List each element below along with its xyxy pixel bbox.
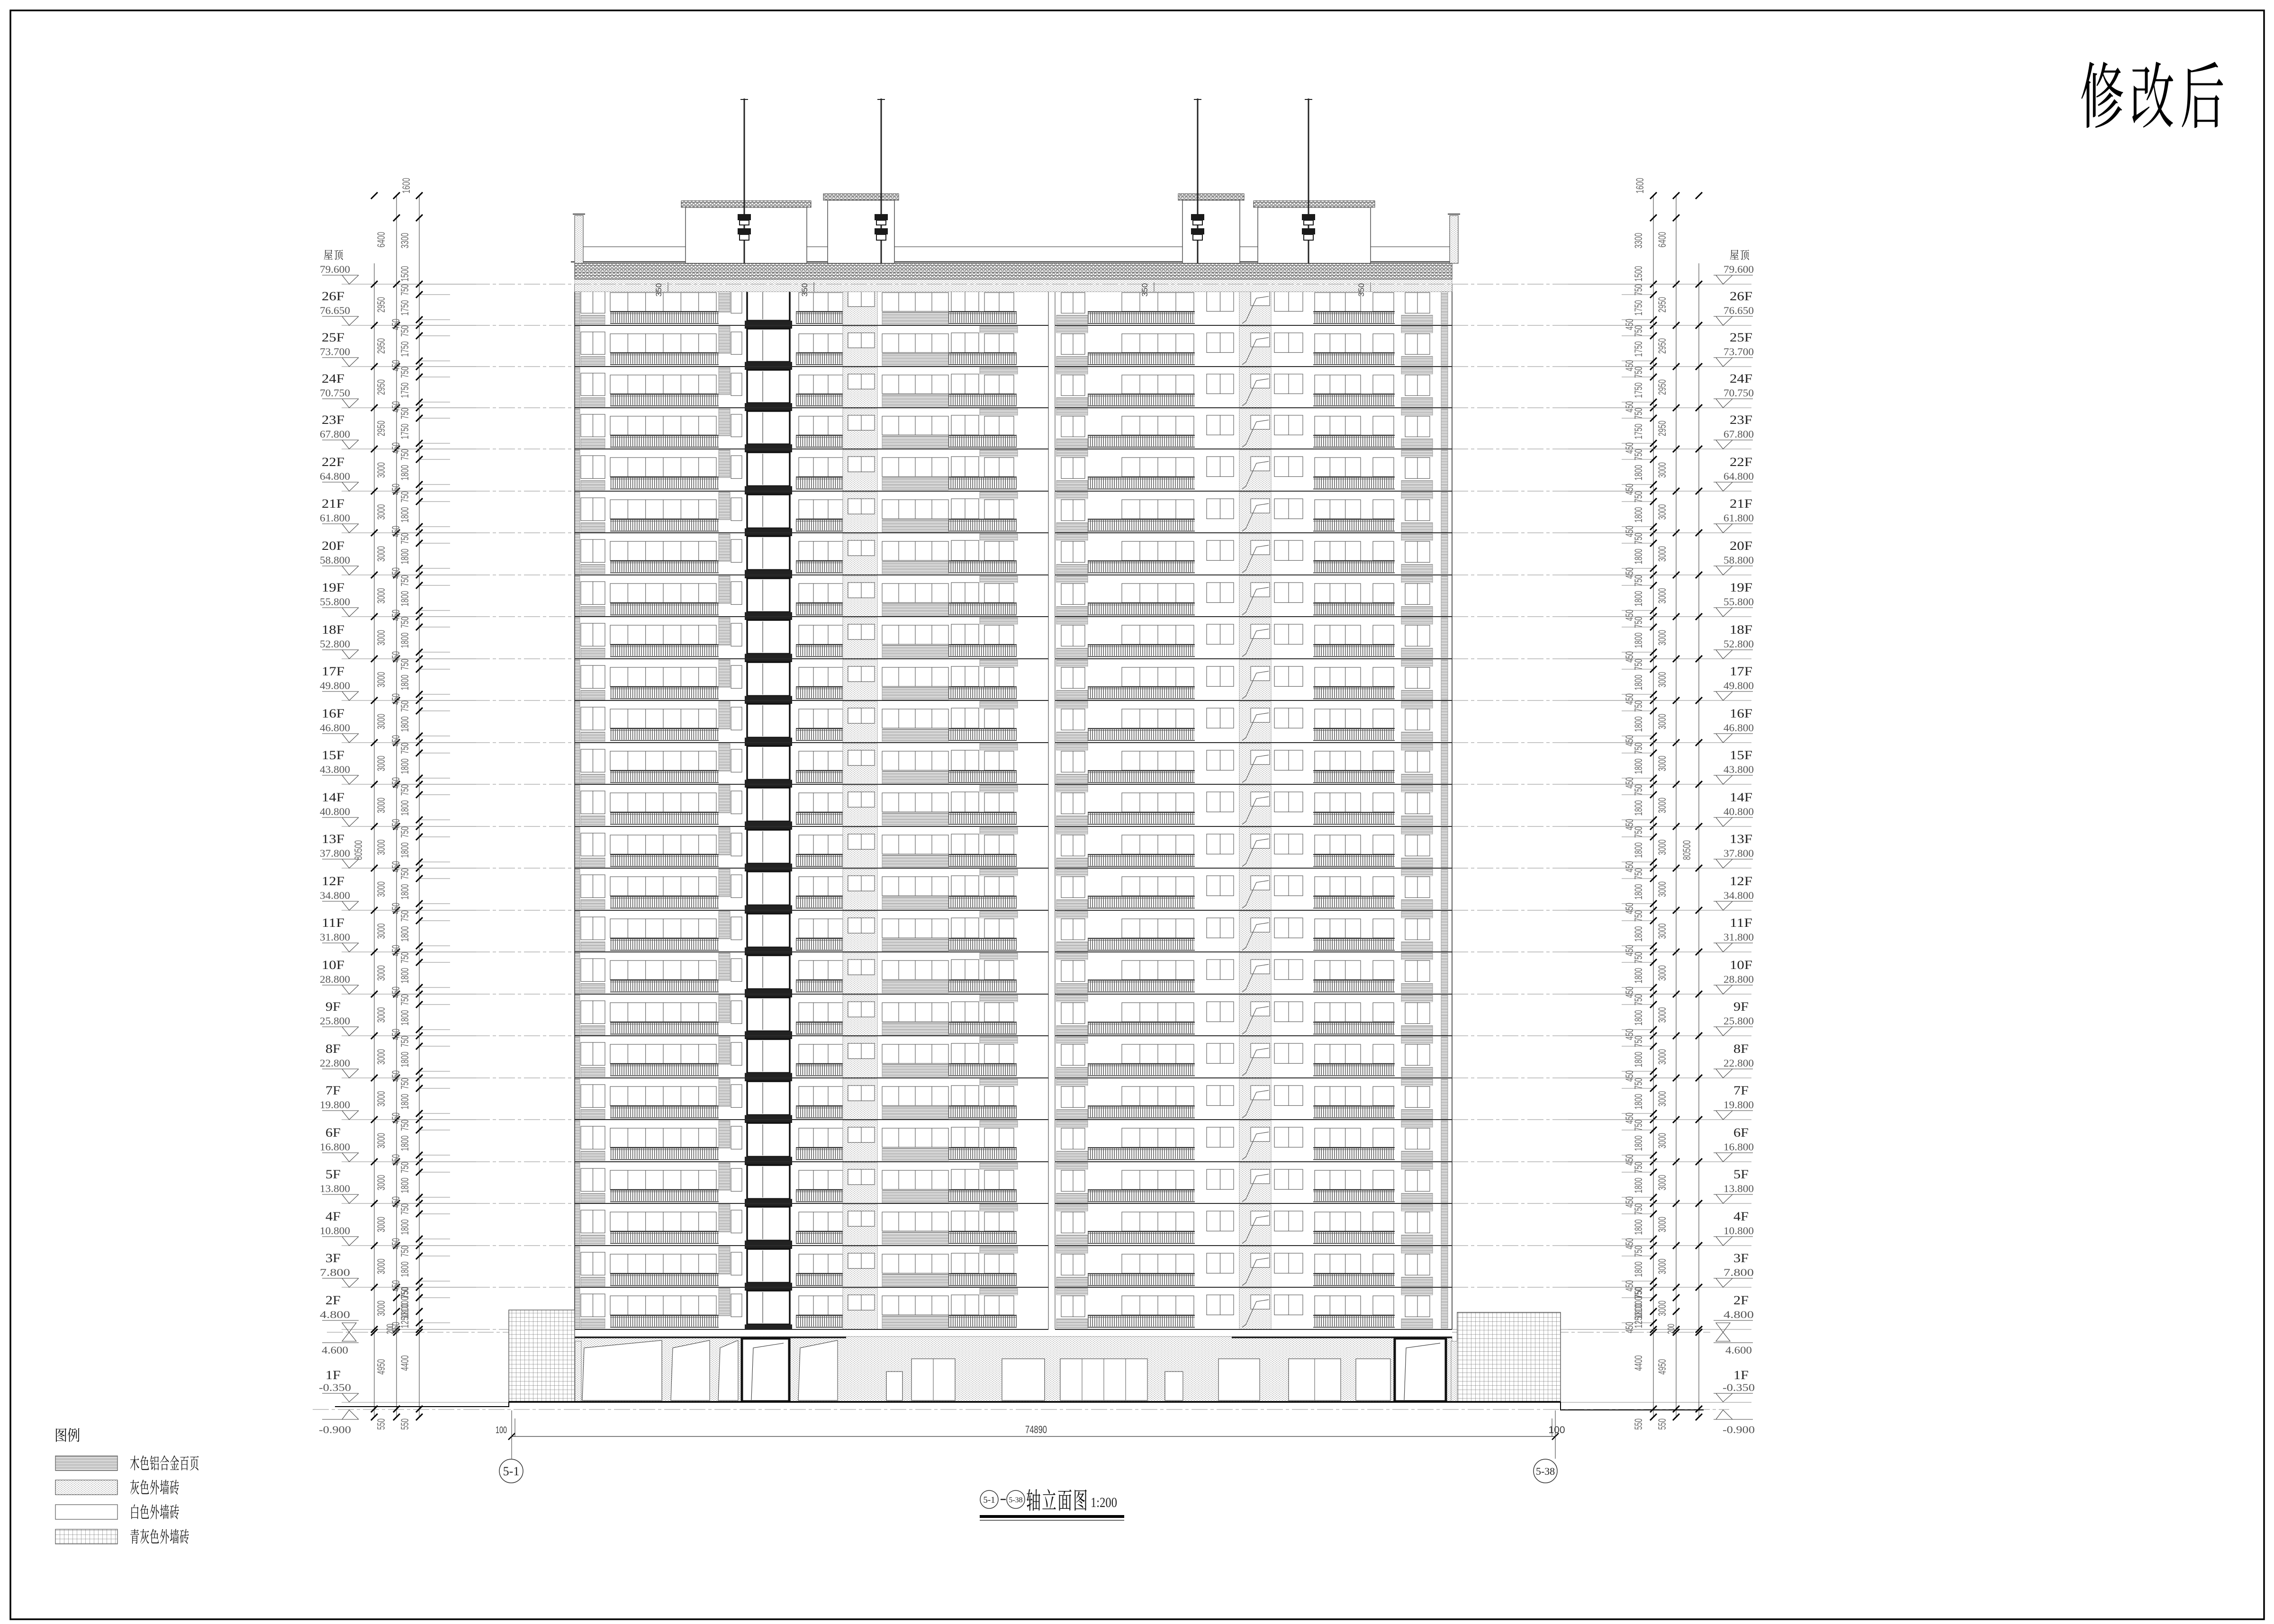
svg-text:750: 750 bbox=[399, 1078, 411, 1089]
svg-text:19F: 19F bbox=[1730, 581, 1752, 594]
svg-text:750: 750 bbox=[1633, 575, 1644, 586]
svg-text:750: 750 bbox=[1633, 533, 1644, 544]
svg-text:3000: 3000 bbox=[375, 630, 387, 646]
svg-text:750: 750 bbox=[399, 700, 411, 712]
svg-text:2950: 2950 bbox=[375, 338, 387, 354]
svg-text:7.800: 7.800 bbox=[1724, 1266, 1754, 1278]
svg-text:750: 750 bbox=[1633, 1287, 1644, 1298]
svg-text:1800: 1800 bbox=[1633, 1010, 1644, 1026]
svg-text:3000: 3000 bbox=[1656, 588, 1668, 604]
svg-text:13.800: 13.800 bbox=[320, 1183, 350, 1194]
svg-text:3000: 3000 bbox=[375, 1217, 387, 1232]
svg-text:1800: 1800 bbox=[1633, 1262, 1644, 1277]
svg-text:17F: 17F bbox=[1730, 664, 1752, 678]
svg-text:200: 200 bbox=[385, 1324, 396, 1334]
svg-text:19.800: 19.800 bbox=[320, 1099, 350, 1111]
svg-text:19.800: 19.800 bbox=[1724, 1099, 1754, 1111]
svg-text:24F: 24F bbox=[1730, 372, 1752, 386]
svg-text:3000: 3000 bbox=[375, 672, 387, 688]
svg-text:100: 100 bbox=[496, 1425, 507, 1436]
svg-text:17F: 17F bbox=[322, 664, 344, 678]
svg-text:3300: 3300 bbox=[399, 233, 411, 249]
svg-text:10.800: 10.800 bbox=[1724, 1225, 1754, 1237]
svg-text:13F: 13F bbox=[322, 832, 344, 846]
svg-text:3000: 3000 bbox=[375, 1049, 387, 1065]
svg-text:4400: 4400 bbox=[1633, 1355, 1644, 1371]
svg-text:6F: 6F bbox=[325, 1126, 341, 1139]
svg-text:1500: 1500 bbox=[399, 266, 411, 282]
svg-text:43.800: 43.800 bbox=[1724, 763, 1754, 775]
svg-text:26F: 26F bbox=[322, 289, 344, 303]
svg-text:3000: 3000 bbox=[375, 714, 387, 729]
svg-text:3000: 3000 bbox=[375, 1301, 387, 1316]
svg-text:2950: 2950 bbox=[375, 379, 387, 395]
svg-text:750: 750 bbox=[399, 491, 411, 502]
svg-text:3000: 3000 bbox=[375, 1091, 387, 1107]
svg-text:1800: 1800 bbox=[399, 1094, 411, 1110]
svg-text:3000: 3000 bbox=[1656, 546, 1668, 562]
svg-text:750: 750 bbox=[399, 1036, 411, 1047]
svg-text:2950: 2950 bbox=[375, 421, 387, 436]
svg-text:49.800: 49.800 bbox=[320, 680, 350, 691]
svg-text:64.800: 64.800 bbox=[320, 470, 350, 482]
svg-text:11F: 11F bbox=[322, 916, 344, 930]
svg-text:1800: 1800 bbox=[1633, 465, 1644, 481]
svg-text:2950: 2950 bbox=[1656, 297, 1668, 313]
svg-text:76.650: 76.650 bbox=[320, 305, 350, 316]
svg-text:2950: 2950 bbox=[375, 297, 387, 313]
svg-text:-0.900: -0.900 bbox=[1723, 1424, 1755, 1436]
svg-text:1800: 1800 bbox=[399, 591, 411, 607]
svg-text:3000: 3000 bbox=[1656, 965, 1668, 981]
svg-text:1800: 1800 bbox=[399, 843, 411, 858]
svg-text:58.800: 58.800 bbox=[1724, 554, 1754, 566]
svg-text:3000: 3000 bbox=[375, 1259, 387, 1274]
svg-text:1800: 1800 bbox=[1633, 717, 1644, 732]
svg-text:3300: 3300 bbox=[1633, 233, 1644, 249]
svg-text:46.800: 46.800 bbox=[1724, 722, 1754, 734]
svg-text:70.750: 70.750 bbox=[1724, 387, 1754, 399]
svg-text:15F: 15F bbox=[1730, 748, 1752, 762]
svg-text:34.800: 34.800 bbox=[320, 889, 350, 901]
svg-text:3000: 3000 bbox=[375, 546, 387, 562]
svg-text:6400: 6400 bbox=[375, 232, 387, 248]
svg-text:31.800: 31.800 bbox=[1724, 931, 1754, 943]
svg-text:750: 750 bbox=[399, 1120, 411, 1131]
svg-text:16F: 16F bbox=[322, 707, 344, 720]
svg-text:750: 750 bbox=[1633, 826, 1644, 838]
svg-text:750: 750 bbox=[1633, 1203, 1644, 1215]
svg-text:1750: 1750 bbox=[1633, 341, 1644, 357]
svg-text:350: 350 bbox=[654, 283, 663, 296]
svg-text:67.800: 67.800 bbox=[320, 428, 350, 440]
svg-text:20F: 20F bbox=[322, 539, 344, 553]
svg-text:25.800: 25.800 bbox=[1724, 1015, 1754, 1027]
svg-text:1800: 1800 bbox=[1633, 968, 1644, 984]
svg-text:73.700: 73.700 bbox=[1724, 346, 1754, 358]
svg-text:750: 750 bbox=[399, 910, 411, 922]
svg-text:26F: 26F bbox=[1730, 289, 1752, 303]
svg-text:4.600: 4.600 bbox=[1725, 1344, 1752, 1356]
svg-text:1800: 1800 bbox=[1633, 926, 1644, 942]
svg-text:11F: 11F bbox=[1730, 916, 1752, 930]
svg-text:14F: 14F bbox=[1730, 790, 1752, 804]
svg-text:3000: 3000 bbox=[1656, 1091, 1668, 1107]
svg-text:3000: 3000 bbox=[375, 462, 387, 478]
svg-text:7.800: 7.800 bbox=[320, 1266, 350, 1278]
svg-text:61.800: 61.800 bbox=[320, 512, 350, 524]
svg-text:24F: 24F bbox=[322, 372, 344, 386]
svg-text:16.800: 16.800 bbox=[1724, 1141, 1754, 1153]
svg-text:750: 750 bbox=[399, 743, 411, 754]
svg-text:750: 750 bbox=[1633, 1120, 1644, 1131]
svg-text:6400: 6400 bbox=[1656, 232, 1668, 248]
svg-text:100: 100 bbox=[1548, 1425, 1565, 1436]
svg-text:52.800: 52.800 bbox=[1724, 638, 1754, 650]
svg-text:13.800: 13.800 bbox=[1724, 1183, 1754, 1194]
svg-text:1800: 1800 bbox=[399, 1136, 411, 1151]
svg-text:750: 750 bbox=[399, 952, 411, 963]
svg-text:3000: 3000 bbox=[1656, 1133, 1668, 1148]
svg-text:4.600: 4.600 bbox=[322, 1344, 348, 1356]
svg-text:10.800: 10.800 bbox=[320, 1225, 350, 1237]
svg-text:18F: 18F bbox=[1730, 623, 1752, 637]
svg-text:3000: 3000 bbox=[1656, 756, 1668, 772]
svg-text:3000: 3000 bbox=[375, 798, 387, 813]
svg-text:1800: 1800 bbox=[399, 633, 411, 648]
svg-text:2950: 2950 bbox=[1656, 379, 1668, 395]
svg-text:1800: 1800 bbox=[399, 675, 411, 691]
svg-text:15F: 15F bbox=[322, 748, 344, 762]
svg-text:1800: 1800 bbox=[399, 926, 411, 942]
svg-text:1800: 1800 bbox=[1633, 549, 1644, 565]
svg-text:22.800: 22.800 bbox=[320, 1057, 350, 1069]
svg-text:1800: 1800 bbox=[1633, 1052, 1644, 1068]
svg-text:23F: 23F bbox=[1730, 413, 1752, 427]
svg-text:750: 750 bbox=[399, 659, 411, 670]
svg-text:1800: 1800 bbox=[1633, 507, 1644, 523]
svg-text:1800: 1800 bbox=[399, 968, 411, 984]
svg-text:12F: 12F bbox=[322, 874, 344, 888]
svg-text:550: 550 bbox=[375, 1418, 387, 1430]
svg-text:1800: 1800 bbox=[1633, 884, 1644, 900]
svg-text:5F: 5F bbox=[1733, 1167, 1749, 1181]
svg-text:1800: 1800 bbox=[399, 717, 411, 732]
svg-text:750: 750 bbox=[1633, 700, 1644, 712]
svg-text:750: 750 bbox=[1633, 910, 1644, 922]
svg-text:750: 750 bbox=[1633, 491, 1644, 502]
svg-text:750: 750 bbox=[399, 1203, 411, 1215]
svg-text:52.800: 52.800 bbox=[320, 638, 350, 650]
svg-text:4.800: 4.800 bbox=[320, 1309, 350, 1320]
svg-text:1800: 1800 bbox=[1633, 1136, 1644, 1151]
svg-text:3000: 3000 bbox=[375, 1175, 387, 1191]
svg-text:2950: 2950 bbox=[1656, 421, 1668, 436]
svg-text:750: 750 bbox=[1633, 449, 1644, 460]
svg-text:1750: 1750 bbox=[1633, 424, 1644, 440]
svg-text:1600: 1600 bbox=[1634, 178, 1646, 194]
svg-text:46.800: 46.800 bbox=[320, 722, 350, 734]
svg-text:1800: 1800 bbox=[399, 1220, 411, 1235]
svg-text:3F: 3F bbox=[1733, 1251, 1749, 1265]
svg-text:3000: 3000 bbox=[1656, 798, 1668, 813]
svg-text:750: 750 bbox=[1633, 743, 1644, 754]
svg-text:3000: 3000 bbox=[1656, 840, 1668, 855]
svg-text:200: 200 bbox=[1666, 1324, 1677, 1334]
svg-text:1800: 1800 bbox=[399, 1010, 411, 1026]
svg-text:1F: 1F bbox=[1733, 1368, 1749, 1382]
svg-text:1750: 1750 bbox=[399, 383, 411, 398]
svg-text:8F: 8F bbox=[1733, 1042, 1749, 1056]
svg-text:9F: 9F bbox=[325, 1000, 341, 1014]
svg-text:80500: 80500 bbox=[1681, 840, 1693, 860]
svg-text:750: 750 bbox=[1633, 1036, 1644, 1047]
svg-text:5-38: 5-38 bbox=[1009, 1496, 1022, 1504]
svg-text:1250: 1250 bbox=[1633, 1313, 1644, 1328]
svg-text:550: 550 bbox=[399, 1418, 411, 1430]
svg-text:750: 750 bbox=[399, 617, 411, 628]
svg-text:64.800: 64.800 bbox=[1724, 470, 1754, 482]
svg-text:3000: 3000 bbox=[1656, 1175, 1668, 1191]
svg-text:550: 550 bbox=[1633, 1418, 1644, 1430]
svg-text:750: 750 bbox=[1633, 868, 1644, 879]
svg-text:3000: 3000 bbox=[1656, 924, 1668, 939]
svg-text:3000: 3000 bbox=[1656, 1217, 1668, 1232]
svg-text:3000: 3000 bbox=[1656, 630, 1668, 646]
svg-text:3000: 3000 bbox=[375, 924, 387, 939]
svg-text:25F: 25F bbox=[322, 331, 344, 344]
svg-text:37.800: 37.800 bbox=[1724, 847, 1754, 859]
svg-text:750: 750 bbox=[399, 408, 411, 419]
svg-text:49.800: 49.800 bbox=[1724, 680, 1754, 691]
svg-text:1800: 1800 bbox=[1633, 1178, 1644, 1193]
svg-text:16.800: 16.800 bbox=[320, 1141, 350, 1153]
svg-text:16F: 16F bbox=[1730, 707, 1752, 720]
svg-text:3000: 3000 bbox=[375, 756, 387, 772]
svg-text:3000: 3000 bbox=[1656, 1259, 1668, 1274]
svg-text:14F: 14F bbox=[322, 790, 344, 804]
svg-text:25.800: 25.800 bbox=[320, 1015, 350, 1027]
svg-text:750: 750 bbox=[399, 1287, 411, 1298]
svg-text:750: 750 bbox=[1633, 1162, 1644, 1173]
svg-text:1800: 1800 bbox=[399, 800, 411, 816]
svg-text:23F: 23F bbox=[322, 413, 344, 427]
svg-text:19F: 19F bbox=[322, 581, 344, 594]
svg-text:10F: 10F bbox=[322, 958, 344, 972]
svg-text:1800: 1800 bbox=[1633, 1220, 1644, 1235]
svg-text:1800: 1800 bbox=[399, 507, 411, 523]
svg-text:1800: 1800 bbox=[399, 759, 411, 774]
svg-text:55.800: 55.800 bbox=[320, 596, 350, 608]
svg-text:3000: 3000 bbox=[1656, 1301, 1668, 1316]
svg-text:7F: 7F bbox=[1733, 1084, 1749, 1097]
svg-text:12F: 12F bbox=[1730, 874, 1752, 888]
svg-text:750: 750 bbox=[399, 367, 411, 378]
svg-text:4950: 4950 bbox=[375, 1359, 387, 1375]
svg-text:3000: 3000 bbox=[1656, 1007, 1668, 1023]
svg-text:21F: 21F bbox=[1730, 497, 1752, 511]
svg-text:3000: 3000 bbox=[1656, 714, 1668, 729]
svg-text:3000: 3000 bbox=[1656, 881, 1668, 897]
svg-text:61.800: 61.800 bbox=[1724, 512, 1754, 524]
svg-text:2950: 2950 bbox=[1656, 338, 1668, 354]
svg-text:3000: 3000 bbox=[375, 840, 387, 855]
svg-text:1800: 1800 bbox=[1633, 633, 1644, 648]
svg-text:1750: 1750 bbox=[1633, 383, 1644, 398]
svg-text:4400: 4400 bbox=[399, 1355, 411, 1371]
svg-text:1250: 1250 bbox=[399, 1313, 411, 1328]
svg-text:1800: 1800 bbox=[399, 465, 411, 481]
svg-text:1:200: 1:200 bbox=[1091, 1495, 1117, 1510]
svg-text:4950: 4950 bbox=[1656, 1359, 1668, 1375]
svg-text:40.800: 40.800 bbox=[1724, 806, 1754, 817]
svg-text:-0.350: -0.350 bbox=[1723, 1382, 1755, 1393]
svg-text:750: 750 bbox=[399, 449, 411, 460]
svg-text:750: 750 bbox=[399, 284, 411, 296]
svg-text:1800: 1800 bbox=[1633, 675, 1644, 691]
svg-text:3000: 3000 bbox=[1656, 1049, 1668, 1065]
svg-text:73.700: 73.700 bbox=[320, 346, 350, 358]
svg-text:34.800: 34.800 bbox=[1724, 889, 1754, 901]
svg-text:21F: 21F bbox=[322, 497, 344, 511]
svg-text:4.800: 4.800 bbox=[1724, 1309, 1754, 1320]
svg-text:750: 750 bbox=[399, 1162, 411, 1173]
svg-text:3000: 3000 bbox=[1656, 672, 1668, 688]
svg-text:1800: 1800 bbox=[399, 1262, 411, 1277]
svg-text:79.600: 79.600 bbox=[1724, 263, 1754, 275]
svg-text:750: 750 bbox=[399, 575, 411, 586]
svg-text:3000: 3000 bbox=[1656, 504, 1668, 520]
svg-text:-0.350: -0.350 bbox=[319, 1382, 351, 1393]
svg-text:-0.900: -0.900 bbox=[319, 1424, 351, 1436]
svg-text:750: 750 bbox=[399, 533, 411, 544]
svg-text:6F: 6F bbox=[1733, 1126, 1749, 1139]
svg-text:74890: 74890 bbox=[1025, 1424, 1047, 1436]
svg-text:1500: 1500 bbox=[1633, 266, 1644, 282]
svg-text:37.800: 37.800 bbox=[320, 847, 350, 859]
svg-text:5F: 5F bbox=[325, 1167, 341, 1181]
svg-text:80500: 80500 bbox=[352, 840, 364, 860]
svg-text:750: 750 bbox=[399, 1246, 411, 1257]
svg-text:2F: 2F bbox=[1733, 1293, 1749, 1307]
svg-text:350: 350 bbox=[1140, 283, 1149, 296]
svg-text:750: 750 bbox=[1633, 1246, 1644, 1257]
svg-text:22F: 22F bbox=[322, 455, 344, 469]
svg-text:3000: 3000 bbox=[375, 588, 387, 604]
svg-text:550: 550 bbox=[1656, 1418, 1668, 1430]
svg-text:750: 750 bbox=[1633, 952, 1644, 963]
svg-text:750: 750 bbox=[1633, 617, 1644, 628]
svg-text:1800: 1800 bbox=[1633, 591, 1644, 607]
svg-text:4F: 4F bbox=[1733, 1210, 1749, 1223]
svg-text:28.800: 28.800 bbox=[1724, 973, 1754, 985]
svg-text:750: 750 bbox=[1633, 994, 1644, 1005]
svg-text:70.750: 70.750 bbox=[320, 387, 350, 399]
svg-text:31.800: 31.800 bbox=[320, 931, 350, 943]
svg-text:750: 750 bbox=[1633, 784, 1644, 796]
svg-text:1800: 1800 bbox=[399, 1178, 411, 1193]
svg-text:22.800: 22.800 bbox=[1724, 1057, 1754, 1069]
svg-text:750: 750 bbox=[399, 994, 411, 1005]
svg-text:2F: 2F bbox=[325, 1293, 341, 1307]
svg-text:1800: 1800 bbox=[1633, 800, 1644, 816]
svg-text:750: 750 bbox=[1633, 1078, 1644, 1089]
svg-text:1750: 1750 bbox=[399, 424, 411, 440]
svg-text:750: 750 bbox=[399, 868, 411, 879]
svg-text:3000: 3000 bbox=[1656, 462, 1668, 478]
svg-text:1800: 1800 bbox=[399, 549, 411, 565]
svg-text:76.650: 76.650 bbox=[1724, 305, 1754, 316]
svg-text:28.800: 28.800 bbox=[320, 973, 350, 985]
svg-text:5-38: 5-38 bbox=[1536, 1465, 1555, 1477]
svg-text:1800: 1800 bbox=[399, 884, 411, 900]
svg-text:1F: 1F bbox=[325, 1368, 341, 1382]
svg-text:13F: 13F bbox=[1730, 832, 1752, 846]
svg-text:3000: 3000 bbox=[375, 965, 387, 981]
svg-text:750: 750 bbox=[1633, 367, 1644, 378]
svg-text:25F: 25F bbox=[1730, 331, 1752, 344]
svg-text:750: 750 bbox=[399, 784, 411, 796]
svg-text:55.800: 55.800 bbox=[1724, 596, 1754, 608]
svg-text:1800: 1800 bbox=[1633, 759, 1644, 774]
svg-text:58.800: 58.800 bbox=[320, 554, 350, 566]
svg-text:3F: 3F bbox=[325, 1251, 341, 1265]
svg-text:22F: 22F bbox=[1730, 455, 1752, 469]
svg-text:8F: 8F bbox=[325, 1042, 341, 1056]
svg-text:7F: 7F bbox=[325, 1084, 341, 1097]
svg-text:750: 750 bbox=[399, 325, 411, 337]
svg-text:750: 750 bbox=[399, 826, 411, 838]
svg-text:750: 750 bbox=[1633, 659, 1644, 670]
svg-text:3000: 3000 bbox=[375, 1133, 387, 1148]
svg-text:350: 350 bbox=[1357, 283, 1366, 296]
svg-text:1600: 1600 bbox=[400, 178, 412, 194]
svg-text:67.800: 67.800 bbox=[1724, 428, 1754, 440]
svg-text:4F: 4F bbox=[325, 1210, 341, 1223]
svg-text:79.600: 79.600 bbox=[320, 263, 350, 275]
svg-text:1750: 1750 bbox=[399, 300, 411, 316]
svg-text:9F: 9F bbox=[1733, 1000, 1749, 1014]
svg-text:350: 350 bbox=[800, 283, 809, 296]
svg-text:1750: 1750 bbox=[399, 341, 411, 357]
svg-text:750: 750 bbox=[1633, 408, 1644, 419]
svg-text:5-1: 5-1 bbox=[983, 1495, 995, 1505]
svg-text:750: 750 bbox=[1633, 325, 1644, 337]
svg-text:1800: 1800 bbox=[1633, 843, 1644, 858]
svg-text:3000: 3000 bbox=[375, 881, 387, 897]
svg-text:10F: 10F bbox=[1730, 958, 1752, 972]
svg-text:5-1: 5-1 bbox=[503, 1464, 520, 1478]
svg-text:40.800: 40.800 bbox=[320, 806, 350, 817]
svg-text:18F: 18F bbox=[322, 623, 344, 637]
svg-text:750: 750 bbox=[1633, 284, 1644, 296]
svg-text:1800: 1800 bbox=[1633, 1094, 1644, 1110]
svg-text:1000: 1000 bbox=[1633, 1297, 1644, 1312]
svg-text:1750: 1750 bbox=[1633, 300, 1644, 316]
svg-text:43.800: 43.800 bbox=[320, 763, 350, 775]
svg-text:3000: 3000 bbox=[375, 1007, 387, 1023]
svg-text:20F: 20F bbox=[1730, 539, 1752, 553]
svg-text:1800: 1800 bbox=[399, 1052, 411, 1068]
svg-text:1000: 1000 bbox=[399, 1297, 411, 1312]
svg-text:3000: 3000 bbox=[375, 504, 387, 520]
